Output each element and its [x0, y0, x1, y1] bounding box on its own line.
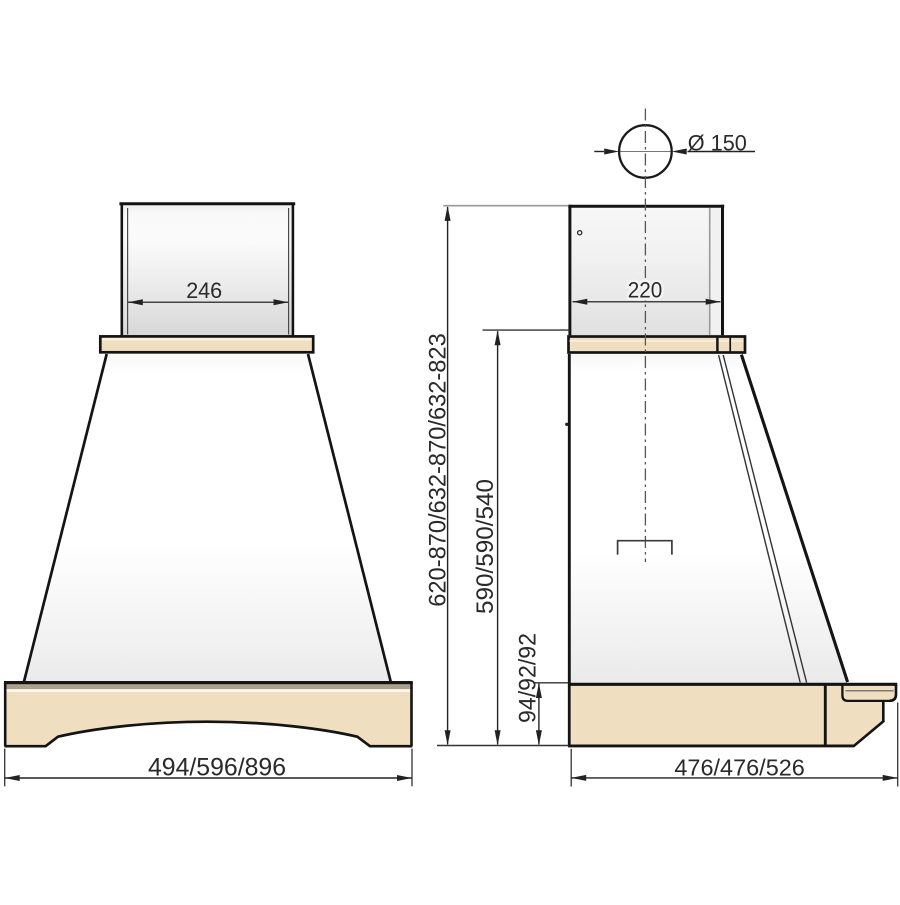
- svg-text:94/92/92: 94/92/92: [515, 633, 542, 723]
- svg-text:620-870/632-870/632-823: 620-870/632-870/632-823: [425, 333, 452, 607]
- svg-text:220: 220: [628, 278, 663, 303]
- svg-text:476/476/526: 476/476/526: [674, 754, 805, 780]
- svg-text:Ø 150: Ø 150: [688, 130, 747, 155]
- svg-text:590/590/540: 590/590/540: [472, 479, 499, 614]
- svg-text:494/596/896: 494/596/896: [148, 753, 286, 781]
- svg-text:246: 246: [186, 278, 222, 303]
